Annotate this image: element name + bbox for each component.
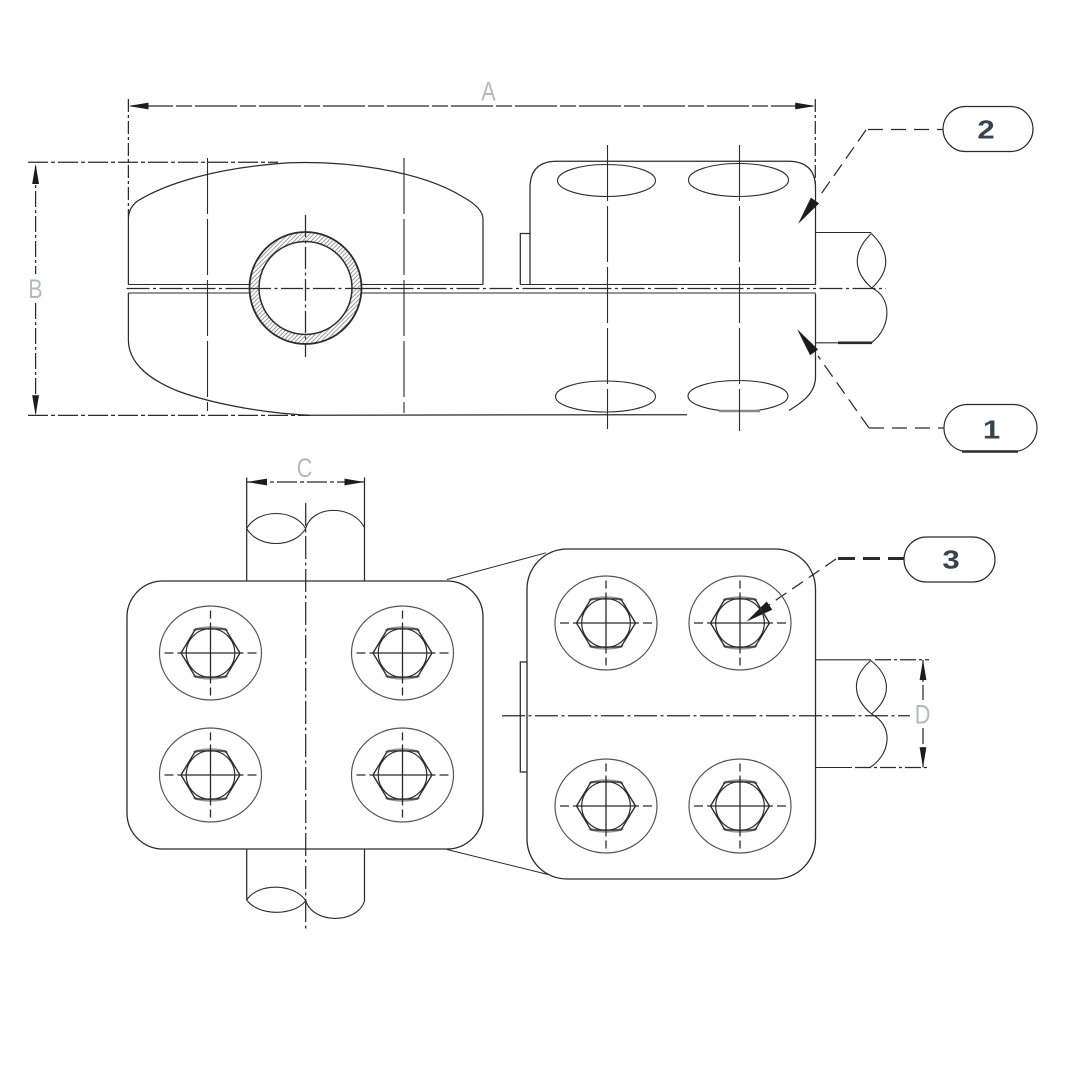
- svg-text:2: 2: [977, 116, 994, 145]
- svg-text:D: D: [915, 700, 931, 730]
- svg-text:3: 3: [942, 546, 959, 575]
- svg-text:C: C: [297, 454, 313, 484]
- svg-text:A: A: [481, 77, 496, 107]
- svg-text:B: B: [28, 275, 42, 305]
- svg-text:1: 1: [983, 416, 1000, 445]
